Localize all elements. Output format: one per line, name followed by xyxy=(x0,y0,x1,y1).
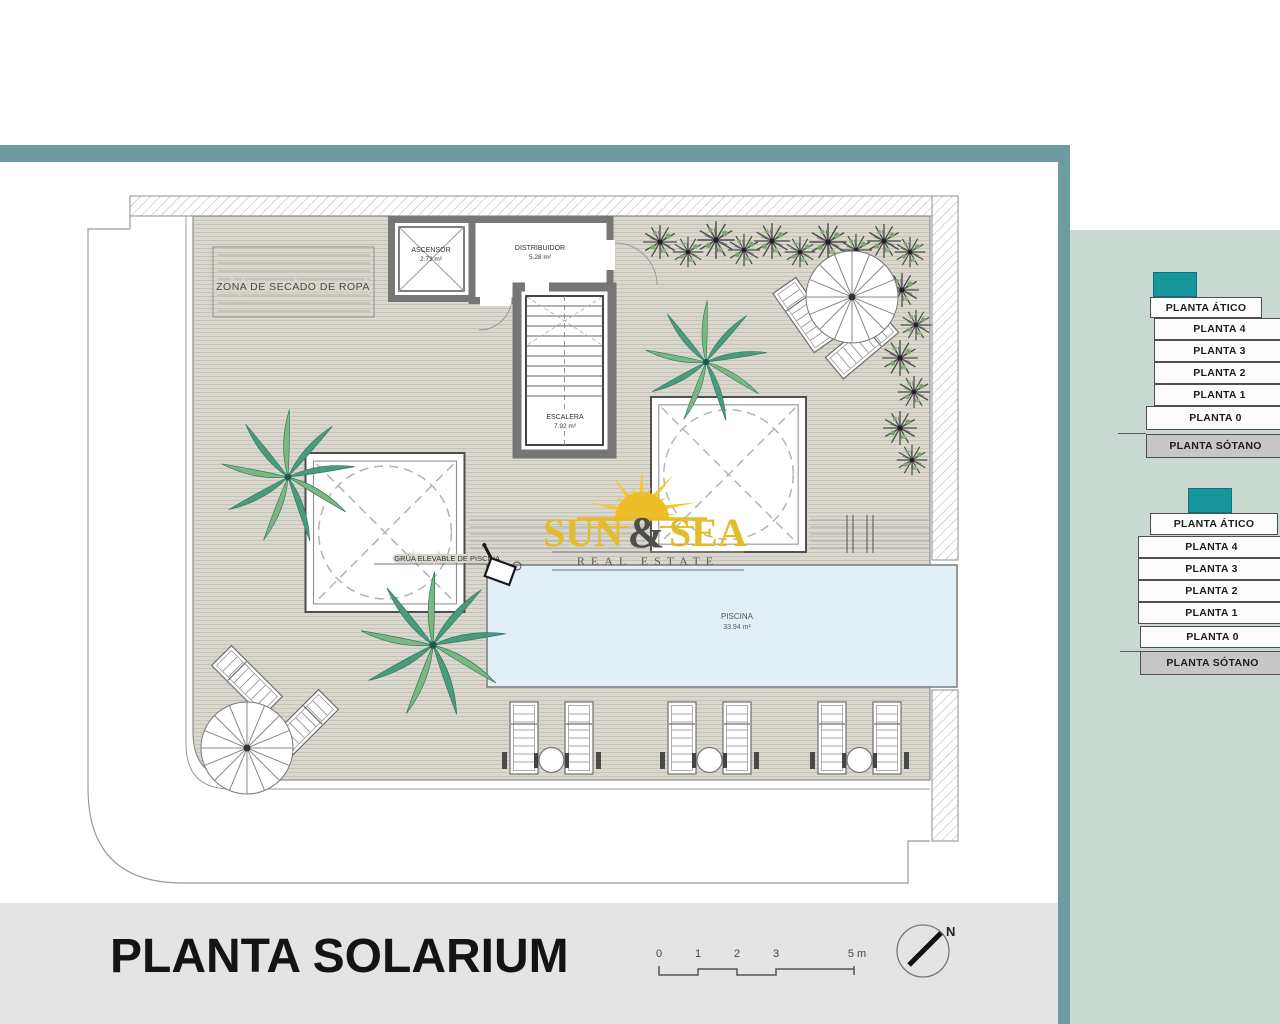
scale-bar: 0 1 2 3 5 m xyxy=(656,948,866,975)
logo-ampersand: & xyxy=(628,508,665,557)
parasol xyxy=(201,702,293,794)
scale-tick-label: 3 xyxy=(773,948,779,960)
stack-divider-line xyxy=(1118,433,1146,434)
crane-label: GRÚA ELEVABLE DE PISCINA xyxy=(394,554,500,563)
stairs-label: ESCALERA xyxy=(546,414,584,421)
floor-button-planta-1[interactable]: PLANTA 1 xyxy=(1138,602,1280,624)
floor-button-planta-sotano[interactable]: PLANTA SÓTANO xyxy=(1140,651,1280,675)
floor-stack-cap xyxy=(1153,272,1197,297)
page-title: PLANTA SOLARIUM xyxy=(110,929,569,984)
elevator-label: ASCENSOR xyxy=(411,247,450,254)
floor-button-planta-2[interactable]: PLANTA 2 xyxy=(1154,362,1280,384)
floor-button-planta-atico[interactable]: PLANTA ÁTICO xyxy=(1150,513,1278,535)
pool-area-label: 33.94 m² xyxy=(723,624,751,631)
stairs: ESCALERA 7.92 m² xyxy=(526,296,603,445)
floor-button-planta-0[interactable]: PLANTA 0 xyxy=(1140,626,1280,648)
floor-button-planta-0[interactable]: PLANTA 0 xyxy=(1146,406,1280,430)
parasol xyxy=(806,251,898,343)
floor-button-planta-3[interactable]: PLANTA 3 xyxy=(1154,340,1280,362)
scale-tick-label: 5 m xyxy=(848,948,866,960)
logo-word2: SEA xyxy=(669,510,747,555)
floor-button-planta-1[interactable]: PLANTA 1 xyxy=(1154,384,1280,406)
distributor-label: DISTRIBUIDOR xyxy=(515,245,565,252)
north-arrow: N xyxy=(897,924,955,977)
elevator-area-label: 2.73 m² xyxy=(420,256,443,263)
scale-tick-label: 1 xyxy=(695,948,701,960)
distributor-area-label: 5.28 m² xyxy=(529,254,552,261)
floor-button-planta-2[interactable]: PLANTA 2 xyxy=(1138,580,1280,602)
hatch-right-lower xyxy=(932,690,958,841)
logo-word1: SUN xyxy=(543,510,623,555)
drying-area-label: ZONA DE SECADO DE ROPA xyxy=(216,281,370,293)
floor-button-planta-3[interactable]: PLANTA 3 xyxy=(1138,558,1280,580)
scale-tick-label: 2 xyxy=(734,948,740,960)
logo-tagline: REAL ESTATE xyxy=(577,554,719,568)
stairs-area-label: 7.92 m² xyxy=(554,423,577,430)
scale-tick-label: 0 xyxy=(656,948,662,960)
floor-plan: ZONA DE SECADO DE ROPA PISCINA 33.94 m² xyxy=(0,0,1280,1024)
floor-button-planta-sotano[interactable]: PLANTA SÓTANO xyxy=(1146,434,1280,458)
floor-button-planta-atico[interactable]: PLANTA ÁTICO xyxy=(1150,297,1262,318)
pool: PISCINA 33.94 m² xyxy=(487,565,957,687)
page: ZONA DE SECADO DE ROPA PISCINA 33.94 m² xyxy=(0,0,1280,1024)
hatch-right-upper xyxy=(932,196,958,560)
hatch-top xyxy=(130,196,958,216)
floor-button-planta-4[interactable]: PLANTA 4 xyxy=(1138,536,1280,558)
north-label: N xyxy=(946,924,955,939)
pool-label: PISCINA xyxy=(721,612,754,621)
skylight-left xyxy=(306,453,465,612)
floor-button-planta-4[interactable]: PLANTA 4 xyxy=(1154,318,1280,340)
stack-divider-line xyxy=(1120,651,1140,652)
floor-stack-cap xyxy=(1188,488,1232,513)
